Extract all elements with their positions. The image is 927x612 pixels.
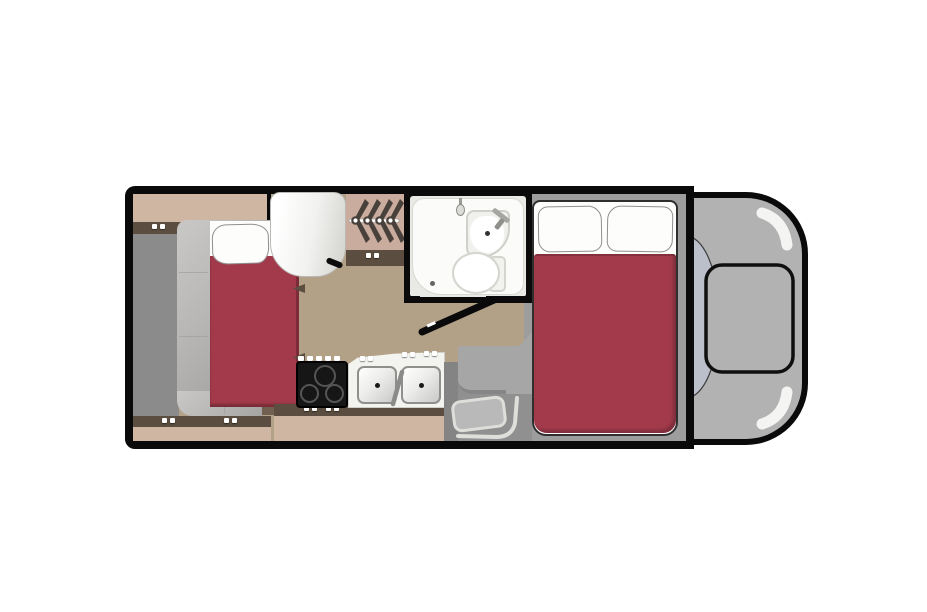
wardrobe-counter-edge (346, 250, 404, 266)
cushion-seam (179, 336, 208, 337)
stove-knob-icon (325, 356, 331, 361)
shower-drain (430, 281, 435, 286)
kitchen-base-cabinet (274, 416, 460, 441)
hanger-rod-graphics (346, 196, 404, 248)
cabinet-handle-icon (360, 356, 365, 361)
stove-knob-icon (298, 356, 304, 361)
bathroom-door (412, 292, 502, 340)
base-cabinet-left (133, 427, 271, 441)
cabinet-handle-icon (424, 351, 429, 356)
toilet (452, 252, 500, 294)
stove-knob-icon (316, 356, 322, 361)
hood (706, 265, 793, 372)
cabinet-handle-icon (152, 224, 157, 229)
cabinet-handle-icon (366, 253, 371, 258)
bedroom-side-panel (133, 220, 179, 420)
cabover-bed-pillow-left (538, 205, 603, 252)
stove-knob-icon (334, 356, 340, 361)
cabinet-handle-icon (402, 352, 407, 357)
stove-knob-icon (307, 356, 313, 361)
base-cabinet-left-edge (133, 416, 271, 427)
cabinet-handle-icon (224, 418, 229, 423)
cushion-seam (179, 272, 208, 273)
bed-surround-cushion-left (177, 220, 210, 416)
stove-burner (300, 384, 319, 403)
step-edge-trim (446, 386, 534, 442)
twin-bed-blanket (210, 256, 299, 407)
cab-highlight-top (762, 213, 787, 245)
shower-head-icon (456, 204, 465, 216)
cabover-bed-pillow-right (607, 205, 674, 252)
bathroom-sink-drain (485, 231, 490, 236)
cabover-bed-blanket (534, 254, 676, 433)
floorplan-canvas: Cab-over motorhome floor plan (top view) (0, 0, 927, 612)
stove-burner (325, 384, 344, 403)
twin-bed-pillow (211, 223, 269, 264)
cab-highlight-bottom (762, 392, 787, 424)
sink-drain (375, 383, 380, 388)
cabinet-handle-icon (162, 418, 167, 423)
sink-drain (419, 383, 424, 388)
kitchen-faucet (386, 364, 408, 408)
cab-graphics (678, 198, 802, 439)
overhead-cabinet-left (133, 194, 271, 222)
